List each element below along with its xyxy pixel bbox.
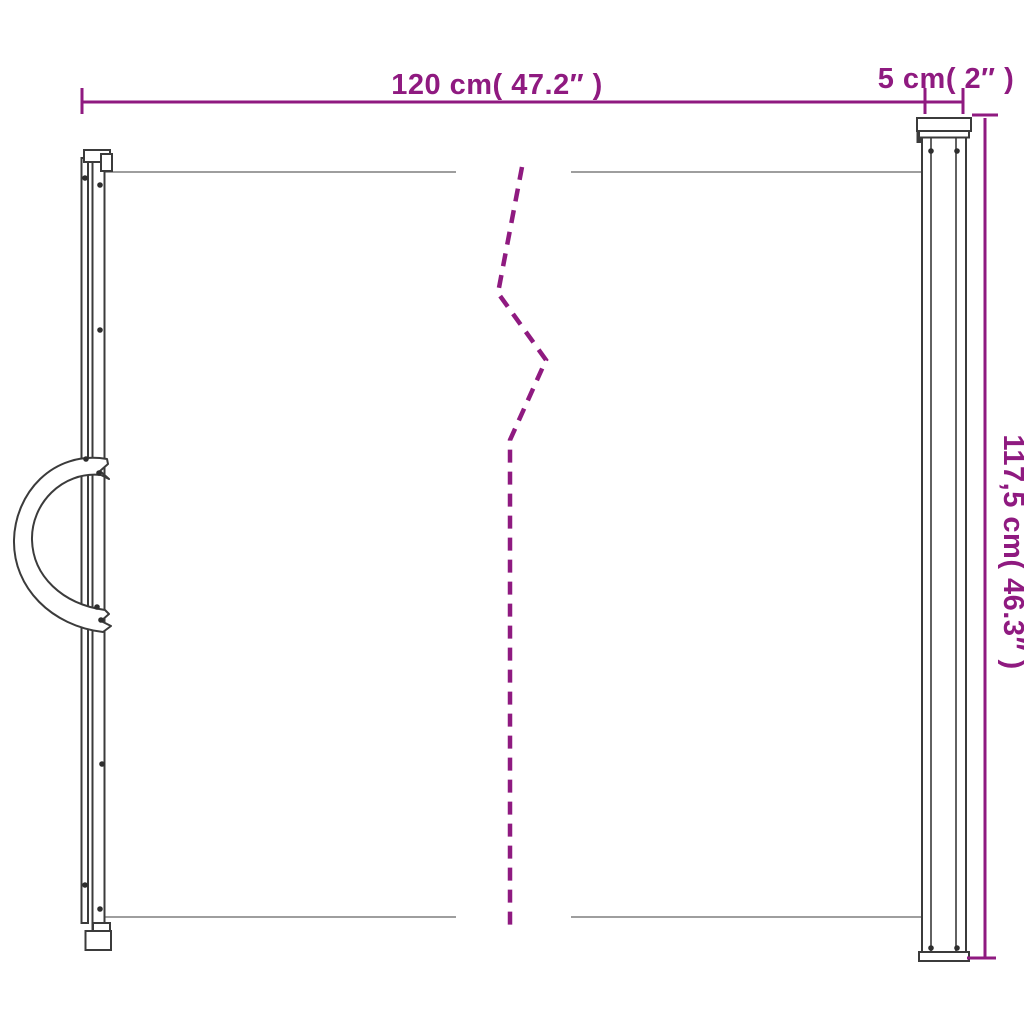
height-dimension: 117,5 cm( 46.3″ )	[967, 115, 1024, 958]
cassette-width-dimension: 5 cm( 2″ )	[878, 63, 1015, 114]
diagram-canvas: 120 cm( 47.2″ ) 5 cm( 2″ ) 117,5 cm( 46.…	[0, 0, 1024, 1024]
screw-icon	[954, 148, 960, 154]
width-dimension: 120 cm( 47.2″ )	[82, 69, 925, 114]
screw-icon	[83, 456, 89, 462]
break-line	[498, 167, 546, 926]
height-dimension-label: 117,5 cm( 46.3″ )	[997, 434, 1024, 669]
screw-icon	[94, 604, 100, 610]
product-dimension-diagram: 120 cm( 47.2″ ) 5 cm( 2″ ) 117,5 cm( 46.…	[0, 0, 1024, 1024]
left-post-foot	[86, 931, 112, 950]
screw-icon	[98, 617, 104, 623]
right-post-body	[922, 137, 966, 953]
screw-icon	[97, 327, 103, 333]
screw-icon	[99, 761, 105, 767]
screw-icon	[82, 882, 88, 888]
screw-icon	[928, 148, 934, 154]
screw-icon	[928, 945, 934, 951]
cassette-width-dimension-label: 5 cm( 2″ )	[878, 63, 1015, 95]
screw-icon	[82, 175, 88, 181]
right-post-bottom-cap	[919, 952, 969, 961]
width-dimension-label: 120 cm( 47.2″ )	[391, 69, 603, 101]
right-post-top-cap	[917, 118, 971, 131]
left-post-rail	[93, 160, 105, 929]
screw-icon	[97, 182, 103, 188]
right-post	[917, 118, 972, 961]
left-post-top-latch	[101, 154, 112, 171]
screw-icon	[954, 945, 960, 951]
left-post-foot-step	[93, 923, 110, 931]
screw-icon	[96, 470, 102, 476]
break-line-dashed	[498, 167, 546, 926]
screw-icon	[97, 906, 103, 912]
left-post-outer-bar	[82, 158, 89, 923]
left-post	[14, 150, 112, 950]
